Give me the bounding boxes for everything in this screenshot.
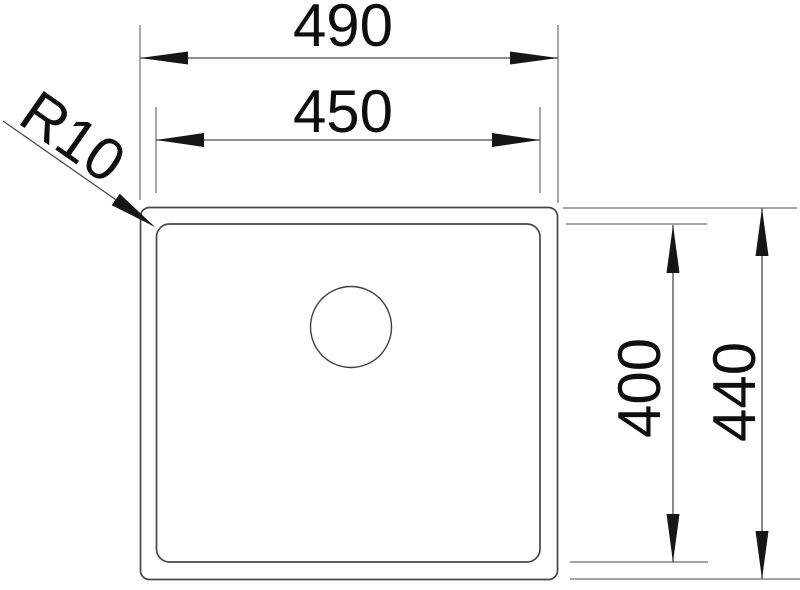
technical-drawing-canvas: 490 450 400 440 xyxy=(0,0,800,590)
dim-outer-width-label: 490 xyxy=(293,0,393,59)
dim-corner-radius: R10 xyxy=(3,78,155,227)
sink-outline xyxy=(141,208,558,580)
arrowhead-up-icon xyxy=(756,208,769,256)
dim-inner-height-label: 400 xyxy=(606,338,673,438)
dim-inner-width: 450 xyxy=(156,78,540,193)
arrowhead-right-icon xyxy=(510,52,558,65)
arrowhead-right-icon xyxy=(492,133,540,147)
corner-radius-label: R10 xyxy=(9,78,138,196)
dim-inner-height: 400 xyxy=(566,224,708,562)
dim-outer-height-label: 440 xyxy=(701,342,768,442)
arrowhead-down-icon xyxy=(756,531,769,579)
arrowhead-left-icon xyxy=(156,133,204,147)
sink-bowl-inner-edge xyxy=(157,224,541,562)
arrowhead-up-icon xyxy=(667,225,680,273)
sink-dimension-drawing: 490 450 400 440 xyxy=(0,0,800,590)
arrowhead-left-icon xyxy=(140,52,188,65)
dim-outer-height: 440 xyxy=(563,208,800,579)
arrowhead-down-icon xyxy=(667,514,680,562)
dim-inner-width-label: 450 xyxy=(293,78,393,145)
